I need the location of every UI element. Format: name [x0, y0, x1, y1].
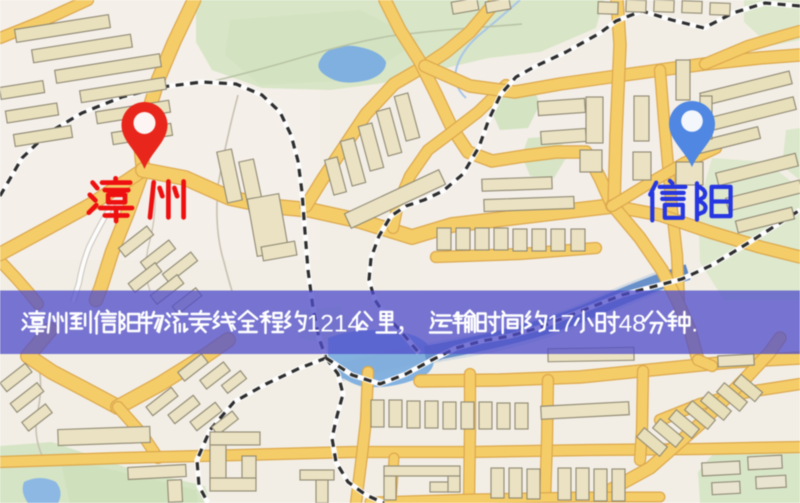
svg-text:.: .: [691, 311, 698, 338]
svg-text:，: ，: [395, 311, 420, 338]
svg-text:1214: 1214: [307, 311, 362, 338]
svg-text:17: 17: [547, 311, 574, 338]
svg-text:48: 48: [619, 311, 646, 338]
